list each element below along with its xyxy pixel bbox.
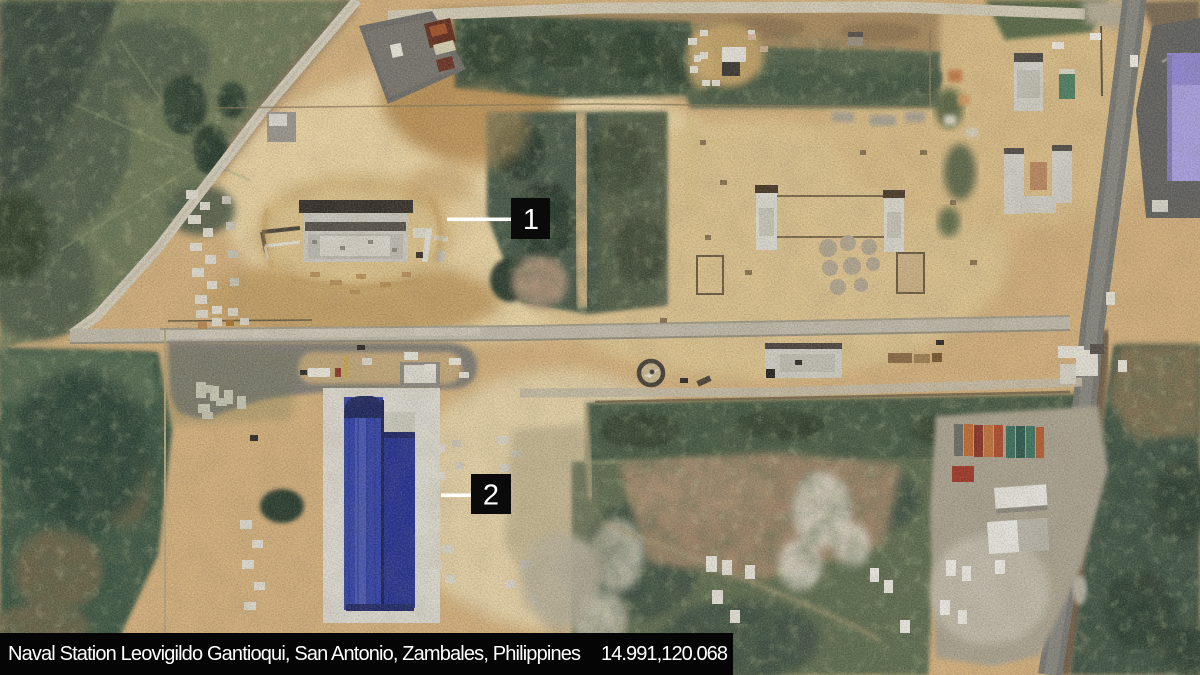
svg-text:2: 2: [483, 480, 499, 512]
svg-text:14.991,120.068: 14.991,120.068: [601, 643, 728, 665]
svg-text:Naval Station Leovigildo Ganti: Naval Station Leovigildo Gantioqui, San …: [8, 643, 581, 665]
svg-text:1: 1: [523, 204, 539, 236]
